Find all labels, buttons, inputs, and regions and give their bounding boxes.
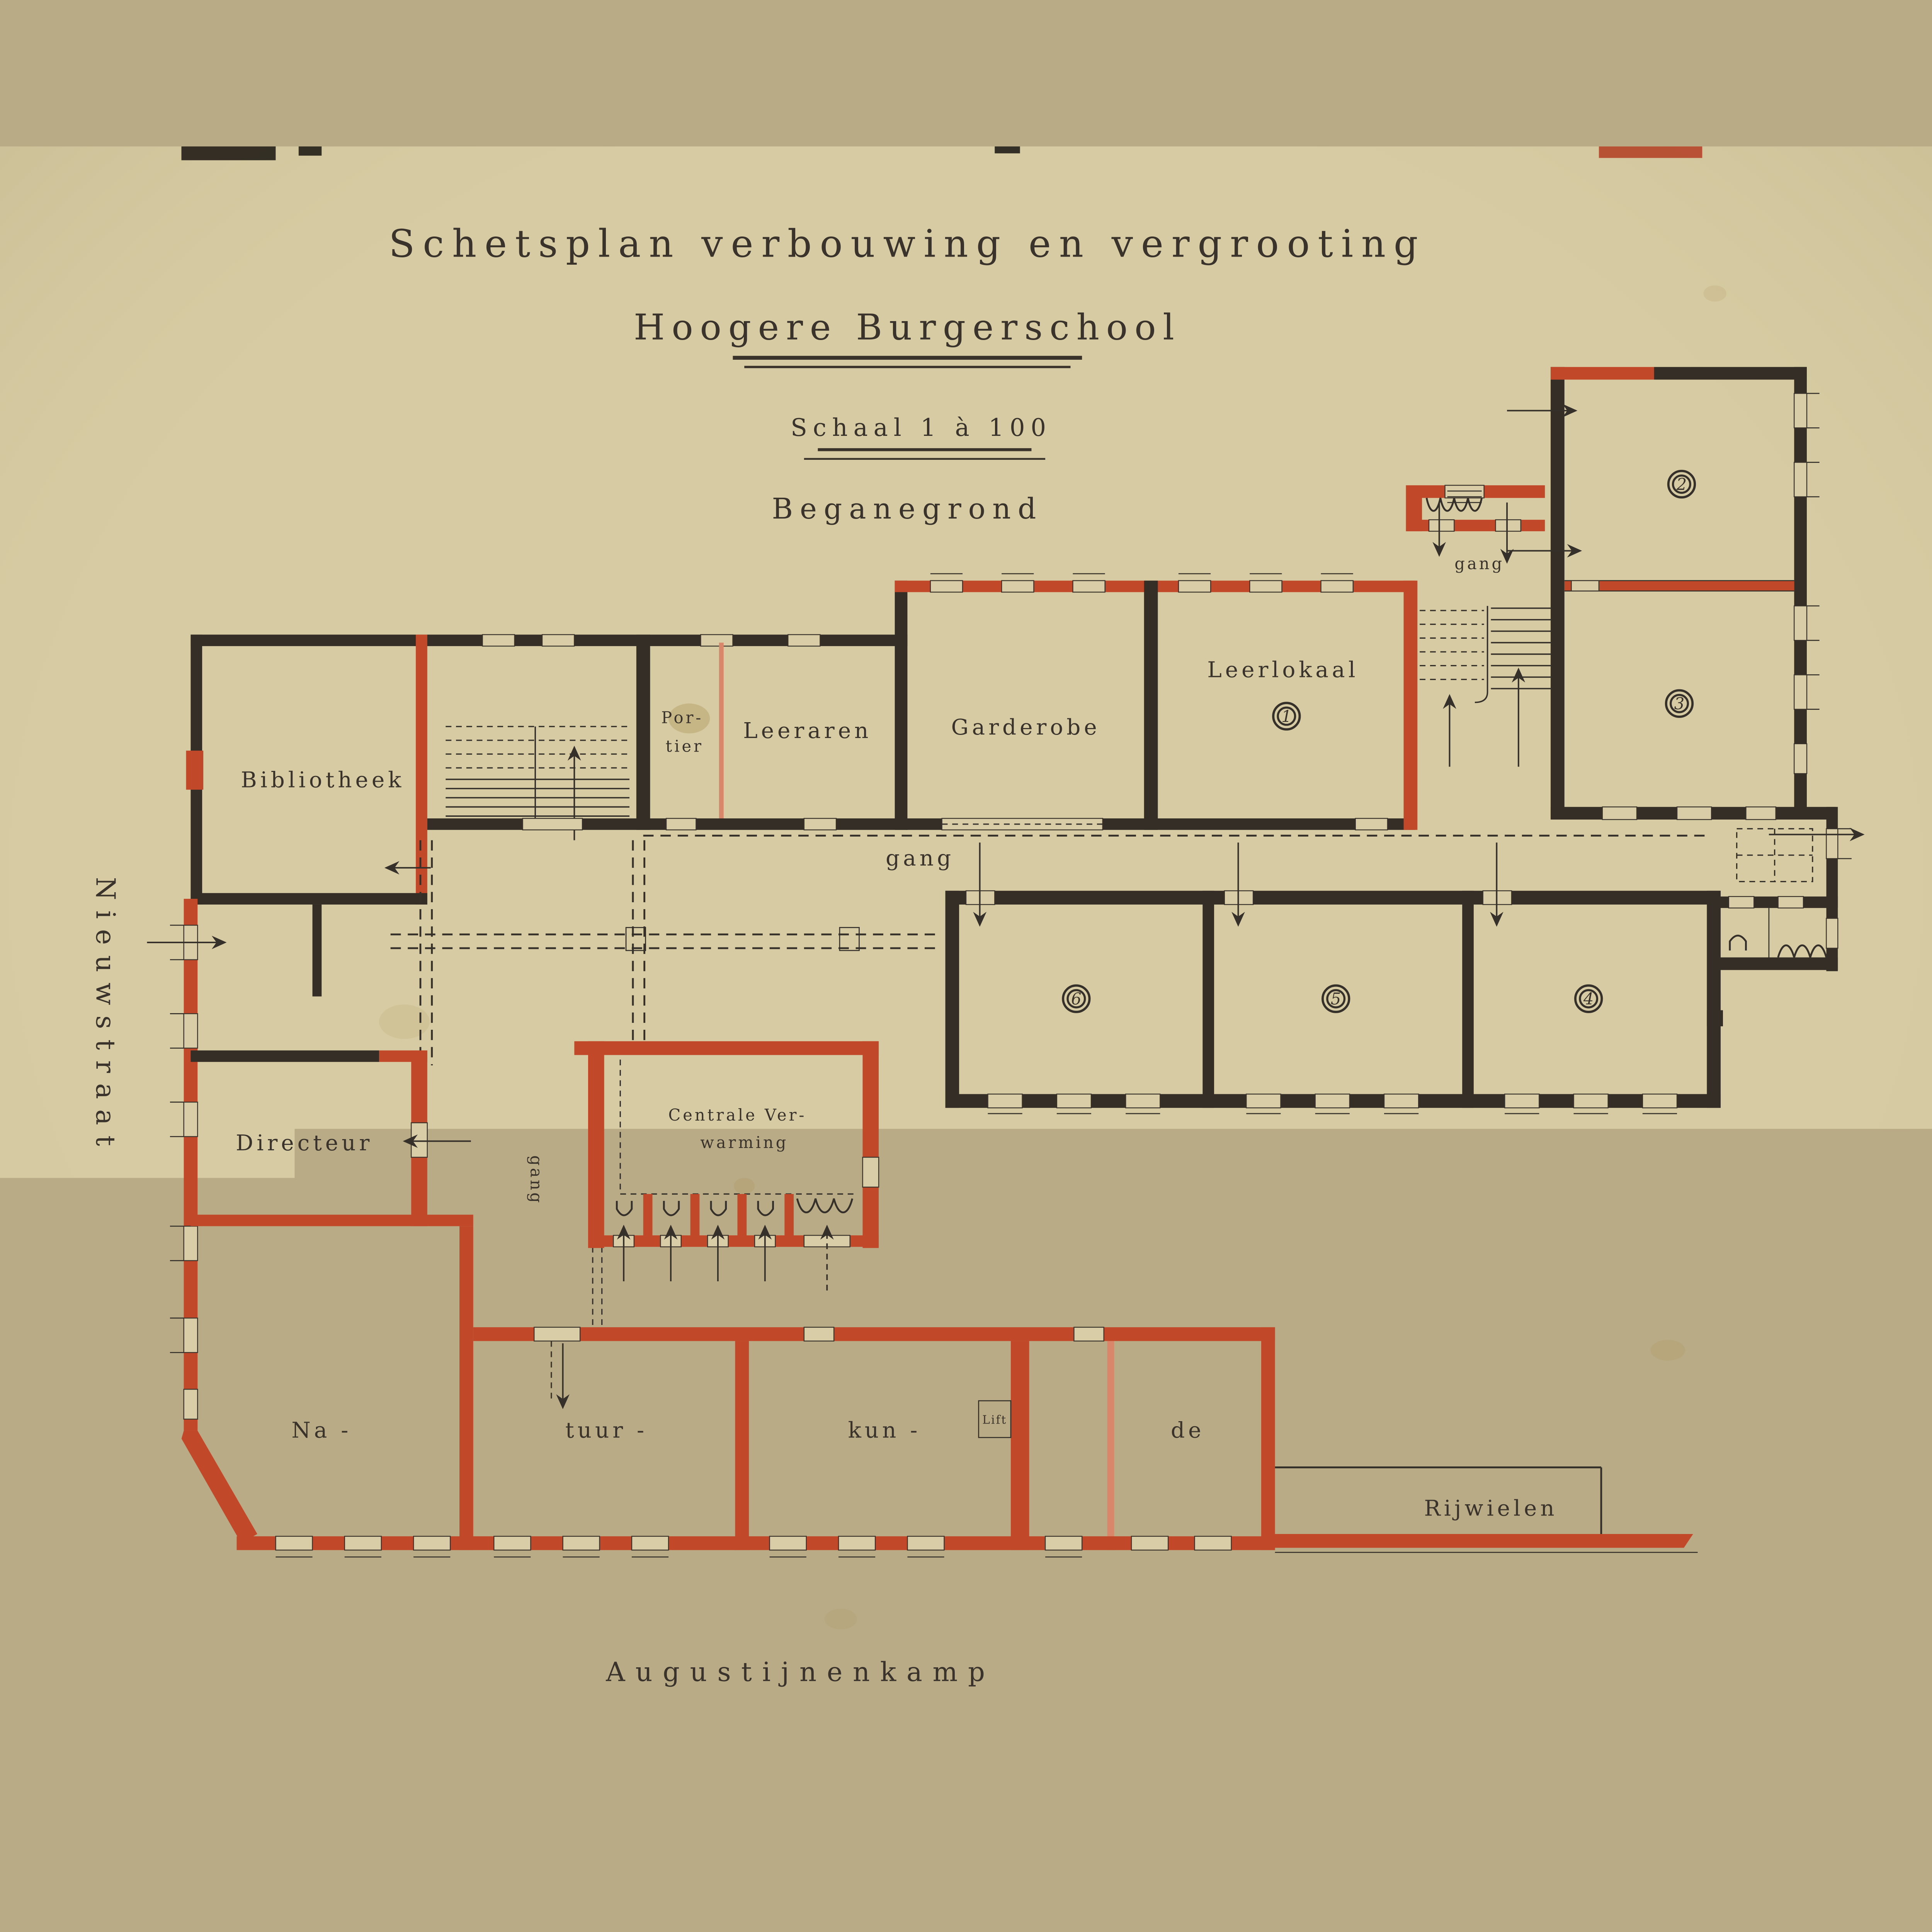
drawing-primitive — [643, 1194, 653, 1240]
drawing-primitive — [930, 581, 963, 592]
drawing-primitive — [770, 1536, 806, 1550]
room-label-na: Na - — [291, 1418, 352, 1443]
drawing-primitive — [1654, 367, 1807, 380]
drawing-primitive — [719, 643, 724, 824]
drawing-primitive — [838, 1536, 875, 1550]
drawing-primitive — [1505, 1094, 1539, 1108]
room-label-portier-2: tier — [666, 737, 704, 756]
room-label-leerlokaal: Leerlokaal — [1207, 657, 1359, 682]
drawing-primitive — [182, 146, 276, 160]
drawing-primitive — [1703, 286, 1726, 302]
room-label-centrale-2: warming — [700, 1133, 788, 1152]
gang-label-west: gang — [527, 1155, 546, 1205]
drawing-primitive — [1602, 807, 1637, 820]
room-label-bibliotheek: Bibliotheek — [241, 768, 405, 793]
drawing-primitive — [190, 893, 427, 905]
drawing-primitive — [416, 634, 427, 905]
drawing-primitive — [542, 634, 574, 646]
drawing-primitive — [473, 1327, 1275, 1341]
drawing-primitive — [1246, 1094, 1281, 1108]
room-number-3: 3 — [1666, 690, 1692, 717]
drawing-primitive — [1315, 1094, 1350, 1108]
drawing-primitive — [1195, 1536, 1231, 1550]
drawing-primitive — [1355, 818, 1388, 830]
drawing-primitive — [804, 1327, 834, 1341]
drawing-primitive — [190, 1215, 473, 1226]
drawing-primitive — [1462, 891, 1474, 1108]
drawing-primitive — [1250, 581, 1282, 592]
drawing-primitive — [995, 146, 1020, 153]
drawing-primitive — [1651, 1340, 1685, 1361]
drawing-primitive — [1599, 146, 1702, 158]
drawing-primitive — [1574, 1094, 1608, 1108]
drawing-primitive — [184, 1226, 198, 1260]
drawing-primitive — [1131, 1536, 1168, 1550]
drawing-primitive — [184, 1014, 198, 1048]
drawing-primitive — [1551, 367, 1654, 380]
drawing-primitive — [413, 1536, 450, 1550]
drawing-primitive — [1794, 744, 1807, 774]
drawing-primitive — [1827, 918, 1838, 948]
room-label-centrale-1: Centrale Ver- — [668, 1105, 806, 1124]
drawing-primitive — [1011, 1341, 1029, 1550]
drawing-primitive — [945, 891, 1721, 905]
drawing-primitive — [1729, 896, 1754, 908]
drawing-primitive — [1261, 1327, 1275, 1550]
plan-title: Schetsplan verbouwing en vergrooting — [389, 222, 1426, 266]
drawing-primitive — [788, 634, 820, 646]
room-label-directeur: Directeur — [236, 1131, 373, 1156]
drawing-primitive — [1321, 581, 1353, 592]
drawing-primitive — [299, 146, 321, 156]
room-number-4-text: 4 — [1583, 990, 1594, 1009]
drawing-primitive — [862, 1041, 879, 1248]
room-number-1: 1 — [1273, 703, 1299, 729]
drawing-primitive — [1144, 581, 1158, 830]
drawing-primitive — [1643, 1094, 1677, 1108]
drawing-primitive — [690, 1194, 700, 1240]
drawing-primitive — [945, 891, 959, 1108]
drawing-primitive — [1202, 891, 1214, 1108]
drawing-primitive — [1551, 367, 1565, 818]
drawing-primitive — [190, 1050, 379, 1062]
drawing-primitive — [411, 1123, 427, 1157]
drawing-primitive — [784, 1194, 794, 1240]
drawing-primitive — [1074, 1327, 1104, 1341]
drawing-primitive — [735, 1341, 749, 1550]
room-label-kun: kun - — [848, 1418, 921, 1443]
drawing-primitive — [1429, 520, 1454, 531]
drawing-primitive — [184, 1318, 198, 1352]
drawing-primitive — [523, 818, 583, 830]
floor-label: Beganegrond — [772, 492, 1043, 526]
drawing-primitive — [734, 1178, 755, 1194]
drawing-primitive — [313, 905, 322, 997]
drawing-primitive — [825, 1609, 857, 1629]
drawing-primitive — [1707, 1010, 1723, 1026]
drawing-primitive — [483, 634, 515, 646]
drawing-primitive — [1445, 485, 1484, 498]
drawing-primitive — [1126, 1094, 1160, 1108]
drawing-primitive — [701, 634, 733, 646]
drawing-primitive — [1107, 1341, 1114, 1550]
room-number-1-text: 1 — [1281, 707, 1291, 726]
drawing-primitive — [379, 1005, 430, 1039]
drawing-primitive — [1495, 520, 1520, 531]
drawing-primitive — [563, 1536, 600, 1550]
drawing-primitive — [1677, 807, 1711, 820]
drawing-primitive — [588, 1041, 604, 1248]
drawing-primitive — [1073, 581, 1105, 592]
drawing-primitive — [1794, 606, 1807, 640]
room-number-2-text: 2 — [1676, 475, 1687, 494]
drawing-primitive — [1057, 1094, 1091, 1108]
room-label-garderobe: Garderobe — [951, 715, 1100, 740]
floor-plan-canvas: Schetsplan verbouwing en vergrooting Hoo… — [0, 0, 1932, 1932]
drawing-primitive — [1746, 807, 1776, 820]
drawing-primitive — [1406, 520, 1545, 531]
drawing-primitive — [1794, 393, 1807, 428]
drawing-primitive — [1707, 891, 1721, 1108]
drawing-primitive — [276, 1536, 312, 1550]
drawing-primitive — [184, 1102, 198, 1136]
drawing-primitive — [494, 1536, 531, 1550]
drawing-primitive — [345, 1536, 381, 1550]
drawing-primitive — [574, 1041, 879, 1055]
room-number-2: 2 — [1668, 471, 1695, 497]
drawing-primitive — [1708, 957, 1838, 970]
drawing-primitive — [1404, 581, 1418, 830]
scale-label: Schaal 1 à 100 — [791, 413, 1052, 442]
drawing-primitive — [1002, 581, 1034, 592]
drawing-primitive — [534, 1327, 580, 1341]
drawing-primitive — [1778, 896, 1803, 908]
room-number-5-text: 5 — [1331, 990, 1341, 1009]
gang-label-entrance: gang — [1454, 554, 1504, 573]
drawing-primitive — [184, 1389, 198, 1419]
drawing-primitive — [895, 581, 908, 830]
drawing-primitive — [236, 1536, 1275, 1550]
drawing-primitive — [1179, 581, 1211, 592]
drawing-primitive — [1708, 896, 1838, 908]
drawing-primitive — [632, 1536, 668, 1550]
drawing-primitive — [988, 1094, 1022, 1108]
room-number-3-text: 3 — [1674, 694, 1684, 713]
street-label-nieuwstraat: Nieuwstraat — [90, 877, 121, 1156]
plan-subtitle: Hoogere Burgerschool — [634, 306, 1181, 348]
drawing-primitive — [804, 818, 836, 830]
street-label-augustijnenkamp: Augustijnenkamp — [605, 1657, 995, 1687]
drawing-primitive — [1045, 1536, 1082, 1550]
drawing-primitive — [186, 751, 204, 790]
room-label-rijwielen: Rijwielen — [1424, 1496, 1558, 1521]
drawing-primitive — [1384, 1094, 1418, 1108]
scanned-floor-plan: Schetsplan verbouwing en vergrooting Hoo… — [0, 0, 1932, 1932]
drawing-primitive — [1794, 462, 1807, 497]
drawing-primitive — [737, 1194, 747, 1240]
room-label-lift: Lift — [982, 1413, 1007, 1427]
drawing-primitive — [907, 1536, 944, 1550]
gang-label-corridor: gang — [886, 846, 954, 871]
drawing-primitive — [1794, 675, 1807, 709]
drawing-primitive — [636, 634, 650, 830]
drawing-primitive — [666, 818, 696, 830]
drawing-primitive — [862, 1157, 879, 1187]
room-label-de: de — [1171, 1418, 1204, 1443]
room-label-portier-1: Por- — [661, 708, 703, 727]
room-label-tuur: tuur - — [565, 1418, 648, 1443]
room-number-6: 6 — [1063, 986, 1089, 1012]
drawing-primitive — [1571, 581, 1599, 591]
room-number-4: 4 — [1575, 986, 1602, 1012]
drawing-primitive — [1827, 829, 1838, 859]
room-number-6-text: 6 — [1071, 990, 1081, 1009]
room-label-leeraren: Leeraren — [743, 718, 872, 743]
room-number-5: 5 — [1323, 986, 1349, 1012]
drawing-primitive — [1269, 1534, 1679, 1548]
drawing-primitive — [459, 1226, 473, 1550]
